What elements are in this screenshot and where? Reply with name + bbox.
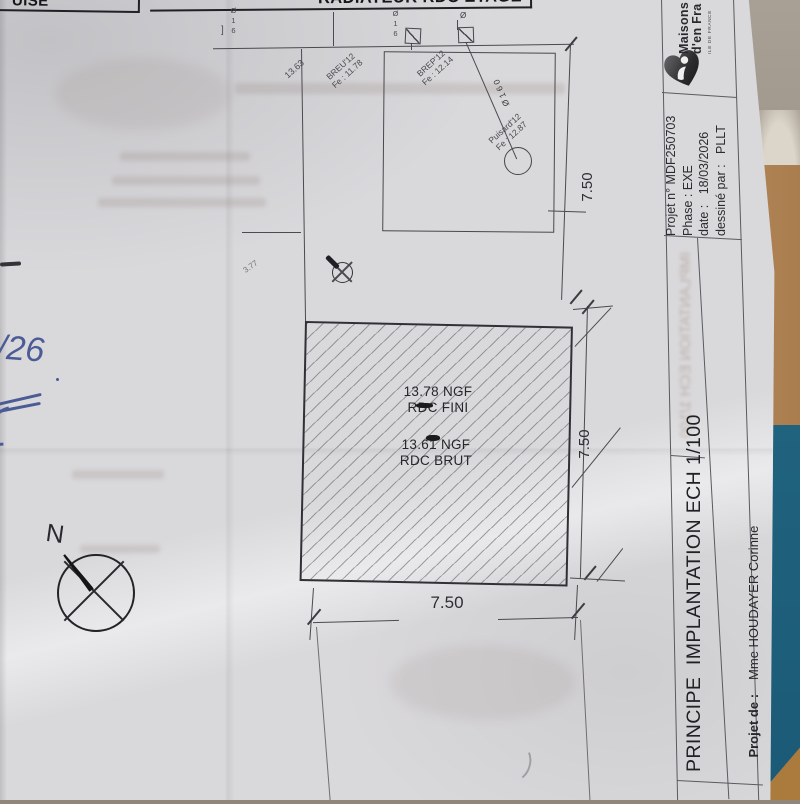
dim-label-right: 7.50	[576, 414, 596, 474]
bleed-through-smudge	[72, 470, 164, 479]
plan-line-left-boundary	[301, 49, 306, 321]
riser-diameter-mark: Ø	[460, 11, 466, 20]
dim-tick	[571, 603, 585, 619]
bleed-through-smudge	[390, 645, 575, 720]
pen-dash	[0, 261, 21, 266]
dim-line-upper-right	[561, 44, 571, 300]
logo-text: Maisons d'en Fra ILE DE FRANCE	[678, 0, 722, 54]
dim-line-bottom	[498, 617, 578, 620]
riser-diameter-left: Ø16	[229, 6, 238, 36]
banner-title-text: RADIATEUR RDC ETAGE	[318, 0, 522, 8]
project-number: Projet n° MDF250703	[663, 96, 680, 236]
plan-building-outline	[382, 51, 556, 232]
north-label: N	[44, 519, 66, 550]
plan-line-riser-left	[333, 12, 334, 46]
pen-dot	[56, 378, 59, 381]
client-label: Projet de :	[746, 694, 761, 758]
plan-line-box-stub	[411, 43, 412, 50]
ghost-showthrough-text: IMPLANTATION ECH 1/100	[677, 250, 701, 440]
bleed-through-smudge	[80, 545, 160, 553]
flag-line	[575, 307, 612, 347]
paper-sheet: UISE RADIATEUR RDC ETAGE ] Ø16 Ø16 Ø Ø16…	[0, 0, 800, 800]
client-name: Mme HOUDAYER Corinne	[746, 526, 761, 680]
banner-title-box: RADIATEUR RDC ETAGE	[150, 0, 532, 12]
dim-tick	[570, 289, 583, 304]
titleblock-border-bottom	[677, 780, 763, 786]
boundary-line-left	[316, 627, 331, 802]
plan-line-top	[213, 44, 574, 50]
slab-level-fini-value: 13.78 NGF	[368, 384, 508, 400]
dim-label-bottom: 7.50	[407, 593, 487, 613]
slab-level-brut: 13.61 NGF RDC BRUT	[366, 437, 506, 469]
bleed-through-smudge	[55, 58, 230, 130]
drawing-title: PRINCIPE IMPLANTATION ECH 1/100	[683, 452, 719, 772]
ink-smudge	[426, 435, 440, 441]
project-date: date : 18/03/2026	[696, 96, 713, 236]
client-cell: Projet de :Mme HOUDAYER Corinne	[731, 472, 751, 772]
slab-level-brut-label: RDC BRUT	[366, 453, 506, 469]
riser-diameter-right: Ø16	[391, 9, 400, 39]
banner-left-fragment-text: UISE	[12, 0, 49, 10]
dim-oblique-mark	[597, 548, 624, 582]
bleed-through-smudge	[120, 152, 250, 161]
project-drawn-by: dessiné par : PLLT	[713, 96, 730, 236]
pen-hook-mark	[501, 742, 535, 784]
riser-bracket: ]	[221, 25, 224, 36]
valve-box-symbol	[405, 28, 422, 45]
project-phase: Phase : EXE	[680, 96, 697, 236]
plan-line-step	[242, 232, 301, 233]
slab-level-fini-label: RDC FINI	[368, 400, 508, 416]
breu-annotation: BREU'12 Fe : 11.78	[323, 50, 364, 90]
puisard-circle	[504, 147, 532, 175]
dim-extension	[309, 588, 314, 640]
project-info: Projet n° MDF250703 Phase : EXE date : 1…	[663, 96, 731, 236]
dim-label-upper-right: 7.50	[579, 157, 599, 217]
bleed-through-smudge	[98, 198, 266, 207]
bleed-through-smudge	[112, 176, 260, 185]
brand-tagline: ILE DE FRANCE	[704, 0, 717, 54]
handwritten-note: /26	[0, 328, 46, 370]
dim-line-bottom	[313, 620, 399, 624]
brand-line2: d'en Fra	[691, 0, 704, 54]
slab-level-fini: 13.78 NGF RDC FINI	[368, 384, 508, 416]
ink-smudge	[416, 403, 433, 408]
offset-annotation: 3.77	[242, 258, 260, 275]
banner-left-fragment-box: UISE	[0, 0, 140, 13]
valve-box-symbol	[458, 27, 475, 44]
boundary-line-right	[580, 620, 591, 802]
